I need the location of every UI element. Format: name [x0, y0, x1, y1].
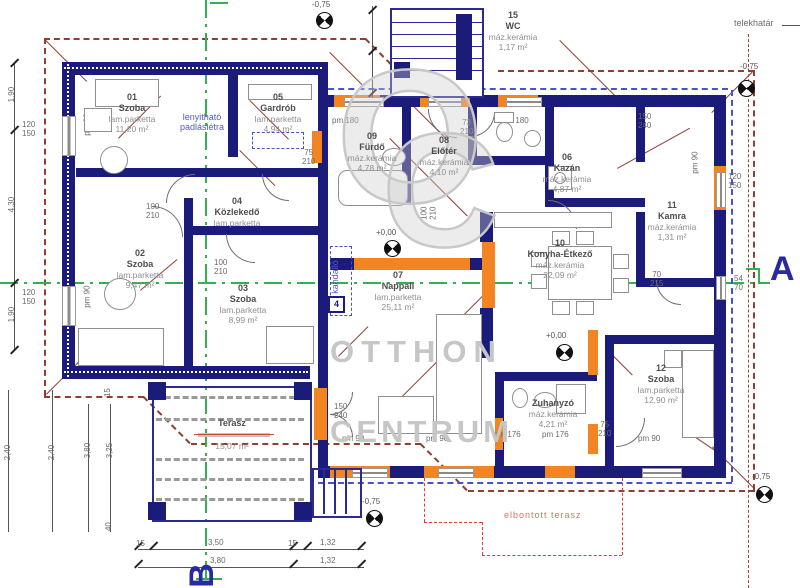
opening-label: 120 150: [728, 172, 741, 190]
stair-block: [394, 62, 410, 78]
roof-valley-line: [617, 128, 690, 169]
attic-ladder-note: lenyitható padláslétra: [160, 112, 244, 132]
roof-line: [753, 70, 755, 490]
opening-label: pm 176: [494, 430, 521, 439]
room-label: 08 Előtér máz.kerámia 4,10 m²: [420, 135, 469, 178]
dimension-line: [138, 567, 364, 568]
dimension-label: 1,32: [320, 556, 336, 565]
terrace-post: [294, 502, 312, 520]
room-number: 12: [638, 363, 685, 374]
floor-plan-canvas: O C OTTHON CENTRUM A B telekhatár: [0, 0, 800, 588]
room-area: 4,21 m²: [529, 419, 578, 429]
bed: [78, 328, 164, 366]
opening-label: 100 210: [419, 207, 437, 220]
room-floor: máz.kerámia: [527, 260, 592, 270]
new-wall-segment: [354, 258, 470, 270]
bathtub: [338, 170, 408, 206]
new-wall-segment: [482, 242, 495, 308]
terrace-hatch: [156, 498, 304, 501]
room-area: 4,94 m²: [255, 124, 302, 134]
window: [438, 468, 474, 478]
bed: [266, 326, 314, 364]
dimension-label: 3,50: [208, 538, 224, 547]
survey-cross: [312, 8, 336, 32]
room-number: 03: [220, 283, 267, 294]
attic-stair: [390, 8, 484, 98]
terrace-strike-line: [194, 434, 274, 435]
room-label: 01 Szoba lam.parketta 11,20 m²: [109, 92, 156, 135]
room-floor: máz.kerámia: [543, 174, 592, 184]
room-area: 4,87 m²: [543, 184, 592, 194]
room-floor: máz.kerámia: [420, 157, 469, 167]
room-label: 06 Kazán máz.kerámia 4,87 m²: [543, 152, 592, 195]
window: [62, 116, 76, 156]
terrace-step-line: [345, 468, 347, 514]
room-name: Kamra: [648, 211, 697, 222]
door-arc: [226, 234, 255, 263]
door-arc: [166, 174, 195, 203]
room-label: 02 Szoba lam.parketta 9,47 m²: [117, 248, 164, 291]
door-arc: [428, 109, 457, 138]
window: [716, 172, 726, 208]
wall-segment: [605, 335, 714, 344]
chair: [576, 301, 594, 315]
dimension-label: 40: [104, 522, 113, 531]
window: [642, 468, 682, 478]
demolished-terrace-outline: [482, 555, 622, 556]
room-label: 04 Közlekedő lam.parketta: [214, 196, 261, 228]
room-label: Zuhanyzó máz.kerámia 4,21 m²: [529, 398, 578, 430]
door-arc: [152, 206, 183, 237]
sofa: [436, 314, 482, 434]
chair: [552, 301, 570, 315]
opening-label: 75 210: [598, 420, 611, 438]
room-area: 25,11 m²: [375, 302, 422, 312]
dimension-tick: [10, 345, 19, 354]
room-label: 03 Szoba lam.parketta 8,99 m²: [220, 283, 267, 326]
level-marker: -0,75: [740, 62, 758, 71]
terrace-post: [148, 382, 166, 400]
wall-segment: [480, 212, 493, 242]
armchair: [100, 146, 128, 174]
window: [716, 276, 726, 300]
chair: [613, 254, 629, 269]
terrace-post: [294, 382, 312, 400]
terrace-hatch: [156, 396, 304, 399]
room-name: Fürdő: [348, 142, 397, 153]
opening-label: 120 150: [22, 120, 35, 138]
wall-segment: [636, 212, 645, 287]
survey-cross: [380, 236, 404, 260]
demolished-terrace-outline: [424, 522, 482, 523]
dimension-line: [52, 390, 53, 532]
level-marker: -0,75: [312, 0, 330, 9]
demolished-terrace-outline: [482, 522, 483, 555]
room-number: 02: [117, 248, 164, 259]
terrace-post: [148, 502, 166, 520]
wall-insulation-dots: [64, 67, 322, 69]
room-area: 12,90 m²: [638, 395, 685, 405]
room-name: Konyha-Étkező: [527, 249, 592, 260]
chair: [613, 278, 629, 293]
roof-valley-line: [329, 52, 362, 85]
opening-label: 150 240: [638, 112, 651, 130]
room-area: 9,47 m²: [117, 280, 164, 290]
dimension-label: 2,40: [3, 445, 12, 461]
dimension-label: 3,25: [105, 443, 114, 459]
survey-cross: [552, 340, 576, 364]
dimension-label: 1,90: [7, 87, 16, 103]
room-number: 05: [255, 92, 302, 103]
room-floor: lam.parketta: [638, 385, 685, 395]
room-area: 11,20 m²: [109, 124, 156, 134]
new-wall-segment: [588, 424, 598, 454]
room-area: 1,17 m²: [489, 42, 538, 52]
insulation-outline: [318, 88, 728, 90]
roof-line: [498, 70, 754, 72]
terrace-outline: [152, 386, 312, 522]
coffee-table: [378, 396, 434, 434]
toilet: [512, 388, 528, 408]
roof-line: [44, 396, 144, 398]
terrace-steps: [312, 468, 362, 518]
survey-cross: [362, 506, 386, 530]
room-name: Gardrób: [255, 103, 302, 114]
demolished-terrace-label: elbontott terasz: [504, 510, 582, 520]
opening-label: 54 70: [734, 274, 743, 292]
room-area: 4,78 m²: [348, 163, 397, 173]
wall-segment: [184, 198, 193, 366]
wall-segment: [605, 335, 614, 466]
wall-segment: [495, 372, 597, 381]
room-number: 08: [420, 135, 469, 146]
roof-valley-line: [338, 326, 368, 356]
window: [506, 97, 542, 107]
room-floor: máz.kerámia: [648, 222, 697, 232]
room-number: 07: [375, 270, 422, 281]
section-tick: [210, 2, 228, 4]
property-line-leader: [782, 25, 800, 26]
dimension-label: 15: [288, 539, 297, 548]
door-arc: [262, 174, 289, 201]
opening-label: 100 210: [214, 258, 227, 276]
property-line-label: telekhatár: [734, 18, 774, 28]
room-floor: máz.kerámia: [529, 409, 578, 419]
room-floor: máz.kerámia: [489, 32, 538, 42]
room-area: 4,10 m²: [420, 167, 469, 177]
opening-label: pm 180: [332, 116, 359, 125]
room-floor: lam.parketta: [109, 114, 156, 124]
room-name: Szoba: [220, 294, 267, 305]
room-label: 12 Szoba lam.parketta 12,90 m²: [638, 363, 685, 406]
dimension-label: 2,40: [47, 445, 56, 461]
room-number: 04: [214, 196, 261, 207]
room-number: 01: [109, 92, 156, 103]
dimension-line: [88, 404, 89, 532]
opening-label: 120 150: [22, 288, 35, 306]
room-label: 05 Gardrób lam.parketta 4,94 m²: [255, 92, 302, 135]
insulation-outline: [318, 482, 732, 484]
demolished-terrace-outline: [424, 478, 425, 522]
stair-rail: [456, 14, 472, 80]
section-marker-b: B: [183, 563, 222, 588]
dimension-line: [8, 390, 9, 532]
room-name: WC: [489, 21, 538, 32]
room-area: 22,09 m²: [527, 270, 592, 280]
dimension-label: 3,80: [83, 443, 92, 459]
level-marker: -0,75: [362, 497, 380, 506]
new-wall-segment: [545, 466, 575, 478]
door-arc: [330, 392, 353, 415]
room-name: Közlekedő: [214, 207, 261, 218]
door-arc: [330, 414, 353, 437]
wall-insulation-dots: [67, 64, 69, 377]
room-name: Zuhanyzó: [529, 398, 578, 409]
toilet: [496, 122, 513, 142]
level-marker: +0,00: [546, 331, 566, 340]
demolished-terrace-outline: [622, 478, 623, 555]
terrace-hatch: [156, 478, 304, 481]
survey-cross: [752, 482, 776, 506]
section-marker-a: A: [770, 250, 795, 289]
terrace-hatch: [156, 458, 304, 461]
opening-label: pm 176: [542, 430, 569, 439]
door-arc: [656, 280, 681, 305]
new-wall-segment: [588, 330, 598, 375]
new-wall-segment: [314, 388, 327, 440]
wall-segment: [228, 62, 238, 157]
window: [62, 286, 76, 326]
dimension-label: 1,32: [320, 538, 336, 547]
window: [344, 97, 384, 107]
room-number: 09: [348, 131, 397, 142]
opening-label: pm 90: [83, 285, 92, 307]
opening-label: pm 90: [691, 151, 700, 173]
room-floor: lam.parketta: [214, 218, 261, 228]
room-name: Szoba: [109, 103, 156, 114]
room-name: Nappali: [375, 281, 422, 292]
room-name: Szoba: [117, 259, 164, 270]
room-floor: máz.kerámia: [348, 153, 397, 163]
room-floor: lam.parketta: [255, 114, 302, 124]
room-floor: lam.parketta: [220, 305, 267, 315]
room-label: 11 Kamra máz.kerámia 1,31 m²: [648, 200, 697, 243]
room-label: 10 Konyha-Étkező máz.kerámia 22,09 m²: [527, 238, 592, 281]
dimension-label: 15: [103, 388, 112, 397]
level-marker: +0,00: [376, 228, 396, 237]
wall-segment: [468, 156, 552, 165]
dimension-label: 15: [136, 539, 145, 548]
room-number: 06: [543, 152, 592, 163]
room-floor: lam.parketta: [117, 270, 164, 280]
room-area: 15,07 m²: [215, 441, 249, 451]
door-arc: [470, 112, 495, 137]
level-marker: -0,75: [752, 472, 770, 481]
roof-line: [468, 490, 755, 492]
opening-label: 75 210: [302, 148, 315, 166]
washbasin: [524, 130, 541, 147]
room-name: Terasz: [215, 418, 249, 429]
room-label: 09 Fürdő máz.kerámia 4,78 m²: [348, 131, 397, 174]
window: [428, 97, 462, 107]
terrace-step-line: [334, 468, 336, 514]
room-label: 07 Nappali lam.parketta 25,11 m²: [375, 270, 422, 313]
room-floor: lam.parketta: [375, 292, 422, 302]
bed: [682, 350, 714, 438]
wall-insulation-dots: [64, 371, 308, 373]
section-tick: [758, 268, 760, 284]
room-number: 10: [527, 238, 592, 249]
fireplace-label: kandalló: [330, 244, 340, 310]
terrace-step-line: [323, 468, 325, 514]
dimension-line: [138, 549, 364, 550]
dimension-line: [110, 404, 111, 532]
property-line: [748, 34, 749, 588]
opening-label: pm 90: [426, 434, 448, 443]
room-area: 8,99 m²: [220, 315, 267, 325]
room-number: 11: [648, 200, 697, 211]
insulation-outline: [731, 90, 733, 482]
dimension-label: 1,90: [7, 307, 16, 323]
room-name: Szoba: [638, 374, 685, 385]
opening-label: pm 90: [638, 434, 660, 443]
room-name: Előtér: [420, 146, 469, 157]
room-name: Kazán: [543, 163, 592, 174]
kitchen-counter: [494, 212, 612, 228]
dimension-label: 4,30: [7, 197, 16, 213]
room-number: 15: [489, 10, 538, 21]
roof-line: [44, 38, 46, 396]
room-label: 15 WC máz.kerámia 1,17 m²: [489, 10, 538, 53]
room-area: 1,31 m²: [648, 232, 697, 242]
